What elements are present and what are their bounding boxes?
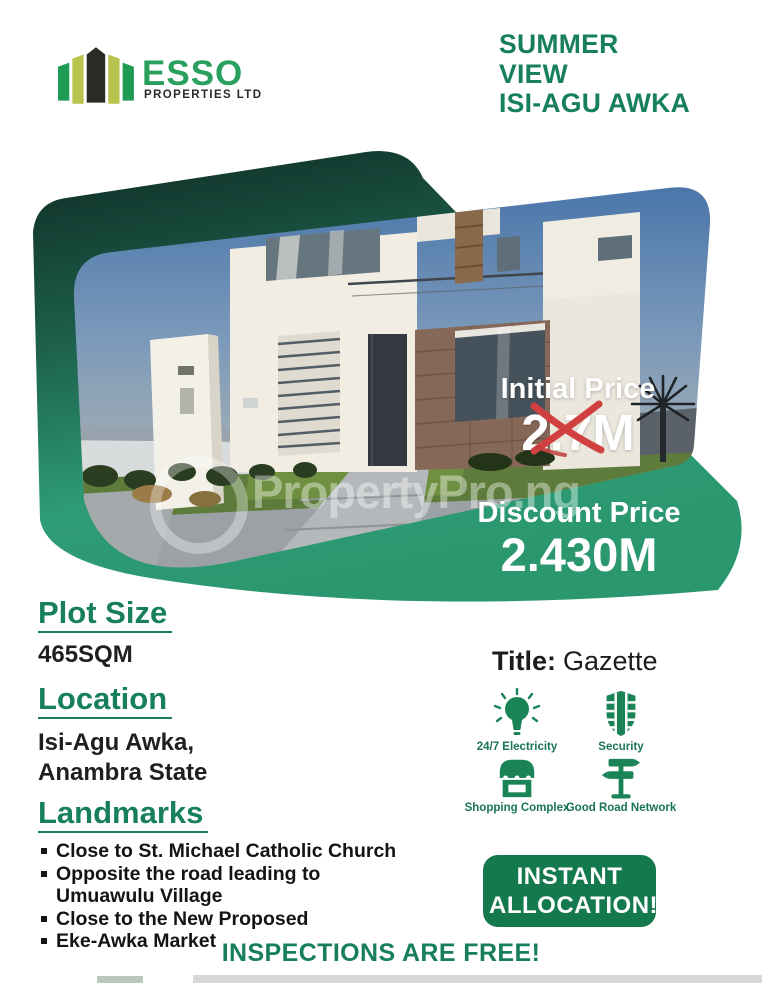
bottom-edge-fragment-small — [97, 976, 143, 983]
landmark-text: Close to the New Proposed — [56, 908, 308, 931]
flyer-page: ESSO PROPERTIES LTD SUMMER VIEW ISI-AGU … — [0, 0, 762, 983]
watermark: PropertyPro.ng — [140, 448, 700, 568]
details-column: Plot Size 465SQM Location Isi-Agu Awka, … — [38, 597, 448, 953]
landmark-item: Close to the New Proposed — [38, 908, 448, 931]
estate-title-line2: VIEW — [499, 60, 749, 90]
location-line1: Isi-Agu Awka, — [38, 728, 448, 758]
estate-title-line3: ISI-AGU AWKA — [499, 89, 749, 119]
location-line2: Anambra State — [38, 758, 448, 788]
building-bars-icon — [58, 46, 138, 106]
feature-label: Security — [560, 741, 682, 753]
landmarks-list: Close to St. Michael Catholic Church Opp… — [38, 840, 448, 953]
title-label: Title: — [492, 646, 556, 676]
landmark-text-wrap: Umuawulu Village — [38, 885, 448, 908]
esso-logo: ESSO PROPERTIES LTD — [58, 44, 318, 106]
plot-size-value: 465SQM — [38, 640, 448, 670]
landmarks-heading: Landmarks — [38, 797, 208, 833]
landmark-item: Opposite the road leading to — [38, 863, 448, 886]
feature-label: Good Road Network — [560, 802, 682, 814]
estate-title: SUMMER VIEW ISI-AGU AWKA — [499, 30, 749, 119]
landmark-text: Close to St. Michael Catholic Church — [56, 840, 396, 863]
watermark-logo-icon — [150, 456, 248, 554]
bullet-icon — [41, 871, 47, 877]
landmark-text: Opposite the road leading to — [56, 863, 320, 886]
logo-subtitle: PROPERTIES LTD — [144, 89, 262, 101]
feature-road: Good Road Network — [560, 755, 682, 814]
road-icon — [560, 755, 682, 799]
instant-allocation-button[interactable]: INSTANT ALLOCATION! — [483, 855, 656, 927]
estate-title-line1: SUMMER — [499, 30, 749, 60]
inspections-note: INSPECTIONS ARE FREE! — [0, 939, 762, 968]
cta-line1: INSTANT — [489, 862, 650, 891]
security-icon — [560, 688, 682, 738]
logo-name: ESSO — [142, 56, 243, 91]
landmark-item: Close to St. Michael Catholic Church — [38, 840, 448, 863]
feature-security: Security — [560, 688, 682, 753]
title-value: Gazette — [563, 646, 658, 676]
bullet-icon — [41, 916, 47, 922]
plot-size-heading: Plot Size — [38, 597, 172, 633]
watermark-text: PropertyPro.ng — [252, 464, 580, 519]
location-heading: Location — [38, 683, 172, 719]
bottom-edge-fragment — [193, 975, 762, 983]
bullet-icon — [41, 848, 47, 854]
title-info: Title:Gazette — [492, 646, 658, 677]
cta-line2: ALLOCATION! — [489, 891, 650, 920]
